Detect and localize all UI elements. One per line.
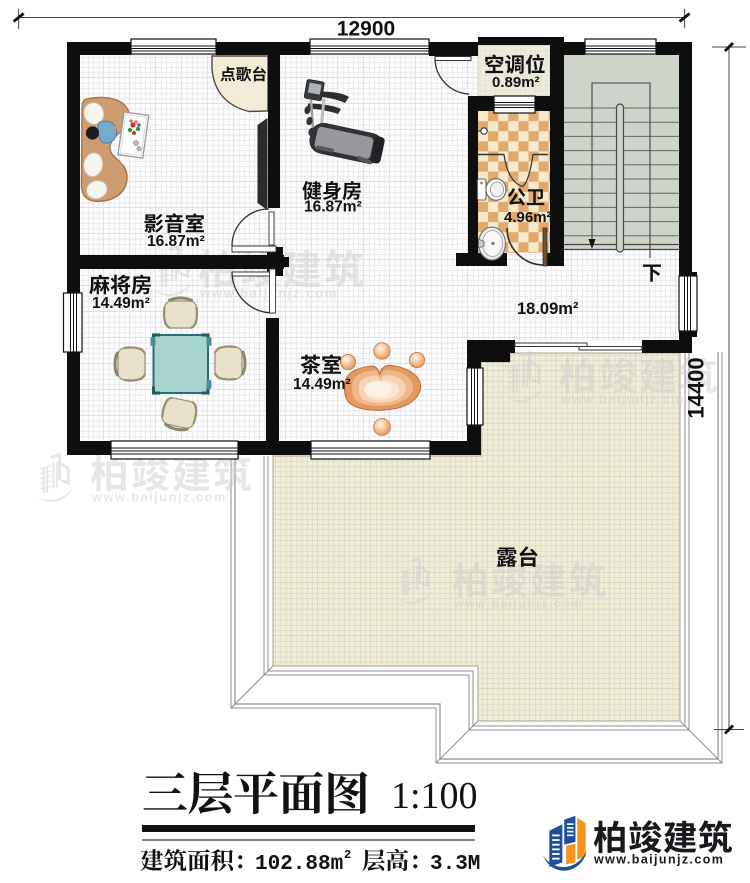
svg-text:www.baijunjz.com: www.baijunjz.com [453,597,583,611]
svg-text:4.96m²: 4.96m² [504,209,552,226]
svg-text:14400: 14400 [684,357,709,418]
svg-text:3.3M: 3.3M [430,853,480,876]
svg-text:1:100: 1:100 [391,775,478,817]
svg-text:16.87m²: 16.87m² [147,233,205,250]
svg-text:16.87m²: 16.87m² [304,199,362,216]
svg-text:www.baijunjz.com: www.baijunjz.com [199,286,338,301]
svg-text:2: 2 [344,848,351,862]
svg-text:14.49m²: 14.49m² [92,295,150,312]
svg-text:www.baijunjz.com: www.baijunjz.com [91,490,227,505]
svg-text:102.88m: 102.88m [255,853,343,876]
svg-text:12900: 12900 [337,18,395,41]
svg-text:0.89m²: 0.89m² [492,74,540,91]
svg-text:14.49m²: 14.49m² [293,376,351,393]
svg-text:18.09m²: 18.09m² [517,300,579,318]
svg-text:www.baijunjz.com: www.baijunjz.com [560,393,693,407]
svg-text:www.baijunjz.com: www.baijunjz.com [593,853,724,867]
